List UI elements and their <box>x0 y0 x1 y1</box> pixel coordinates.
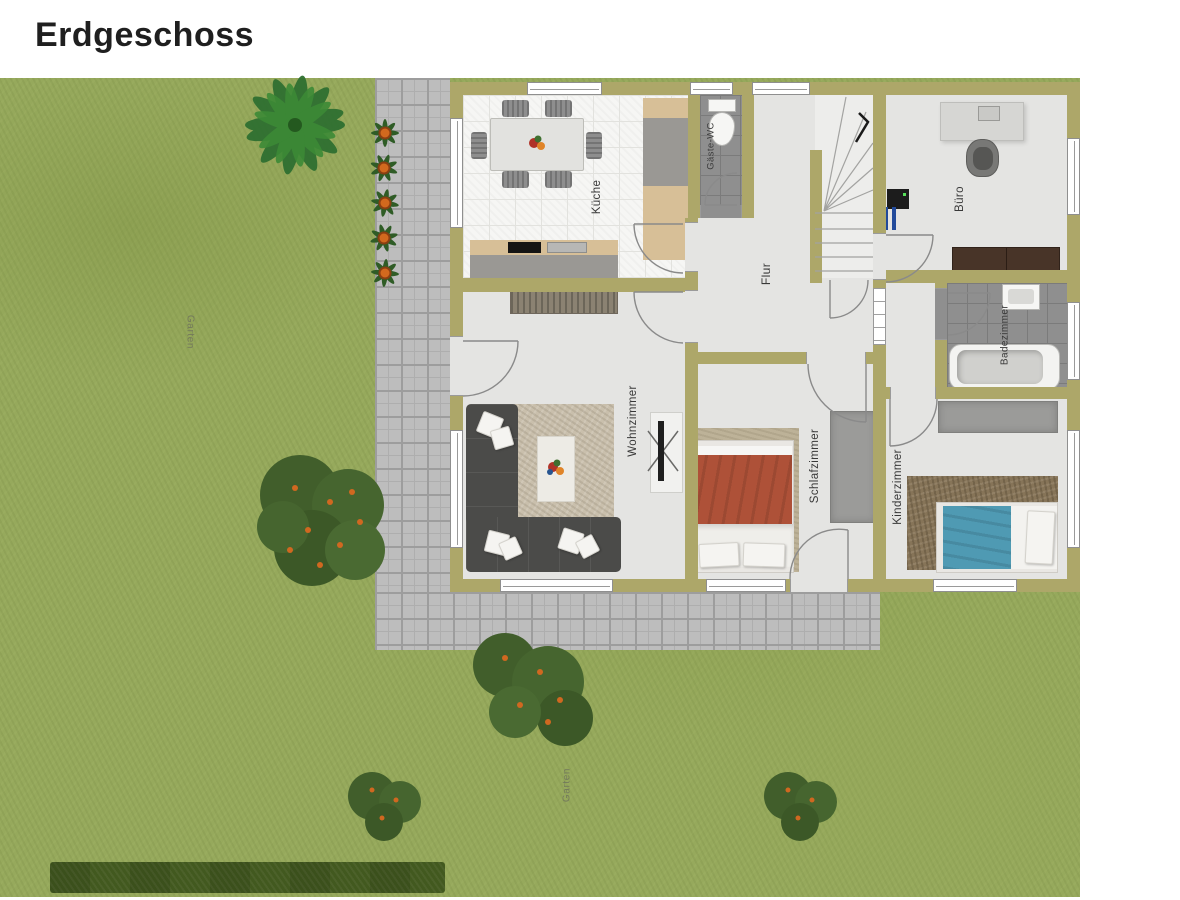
dining-chair <box>502 100 529 117</box>
printer <box>887 189 909 209</box>
room-label-badezimmer: Badezimmer <box>1000 305 1011 365</box>
door-opening <box>685 290 698 343</box>
bed-pillow <box>698 542 739 568</box>
front-door-opening <box>450 336 463 396</box>
paved-terrace <box>375 592 880 650</box>
room-label-wohnzimmer: Wohnzimmer <box>627 385 639 457</box>
double-bed-duvet <box>691 455 792 524</box>
door-opening <box>700 205 742 218</box>
room-label-schlafzimmer: Schlafzimmer <box>809 429 821 503</box>
room-label-flur: Flur <box>759 263 773 285</box>
double-bed-foot <box>691 446 792 455</box>
room-label-kinderzimmer: Kinderzimmer <box>892 449 904 525</box>
room-label-gaeste-wc: Gäste-WC <box>706 122 717 170</box>
door-opening <box>890 387 936 399</box>
dining-chair <box>471 132 487 159</box>
window <box>1067 430 1080 548</box>
window <box>1067 138 1080 215</box>
wall-niche <box>873 288 886 345</box>
window <box>450 430 463 548</box>
dining-table <box>490 118 584 171</box>
bed-pillow <box>1025 510 1056 564</box>
staircase <box>815 95 873 278</box>
tv-board <box>650 412 683 493</box>
window <box>1067 302 1080 380</box>
dining-chair <box>545 100 572 117</box>
window <box>752 82 810 95</box>
single-bed-duvet <box>943 506 1011 569</box>
wall <box>810 150 822 283</box>
window <box>706 579 786 592</box>
blue-item <box>892 207 896 230</box>
wall <box>886 270 1067 283</box>
office-chair-seat <box>973 147 993 170</box>
door-opening <box>935 288 947 340</box>
bathroom-sink-basin <box>1008 289 1034 304</box>
page-title: Erdgeschoss <box>35 16 254 55</box>
wall <box>685 218 698 579</box>
bed-pillow <box>743 542 786 567</box>
dining-chair <box>586 132 602 159</box>
kitchen-counter-body <box>470 255 618 278</box>
bedroom-wardrobe <box>830 411 876 523</box>
wall <box>742 95 754 218</box>
printer-led <box>903 193 906 196</box>
door-opening <box>806 352 866 364</box>
door-opening <box>685 222 698 272</box>
kitchen-tall-cabinet-front <box>643 118 688 186</box>
living-rug-inner <box>537 436 575 502</box>
room-label-buero: Büro <box>954 186 966 212</box>
window <box>450 118 463 228</box>
kitchen-sink <box>547 242 587 253</box>
monitor <box>978 106 1000 121</box>
kids-wardrobe <box>938 401 1058 433</box>
kitchen-counter-top <box>470 240 618 255</box>
stove <box>508 242 541 253</box>
window <box>500 579 613 592</box>
door-opening <box>873 233 886 280</box>
room-label-kueche: Küche <box>591 180 603 215</box>
terrace-door-opening <box>790 579 848 592</box>
dining-chair <box>502 171 529 188</box>
toilet-tank <box>708 99 736 112</box>
paved-path <box>375 78 450 650</box>
window <box>933 579 1017 592</box>
garden-label-left: Garten <box>185 315 196 349</box>
floor-plan-page: Erdgeschoss Garten Garten <box>0 0 1180 900</box>
window <box>527 82 602 95</box>
window <box>690 82 733 95</box>
wall <box>688 95 700 218</box>
wall <box>463 278 685 292</box>
hedge <box>50 862 445 893</box>
dining-chair <box>545 171 572 188</box>
garden-label-bottom: Garten <box>562 768 573 802</box>
